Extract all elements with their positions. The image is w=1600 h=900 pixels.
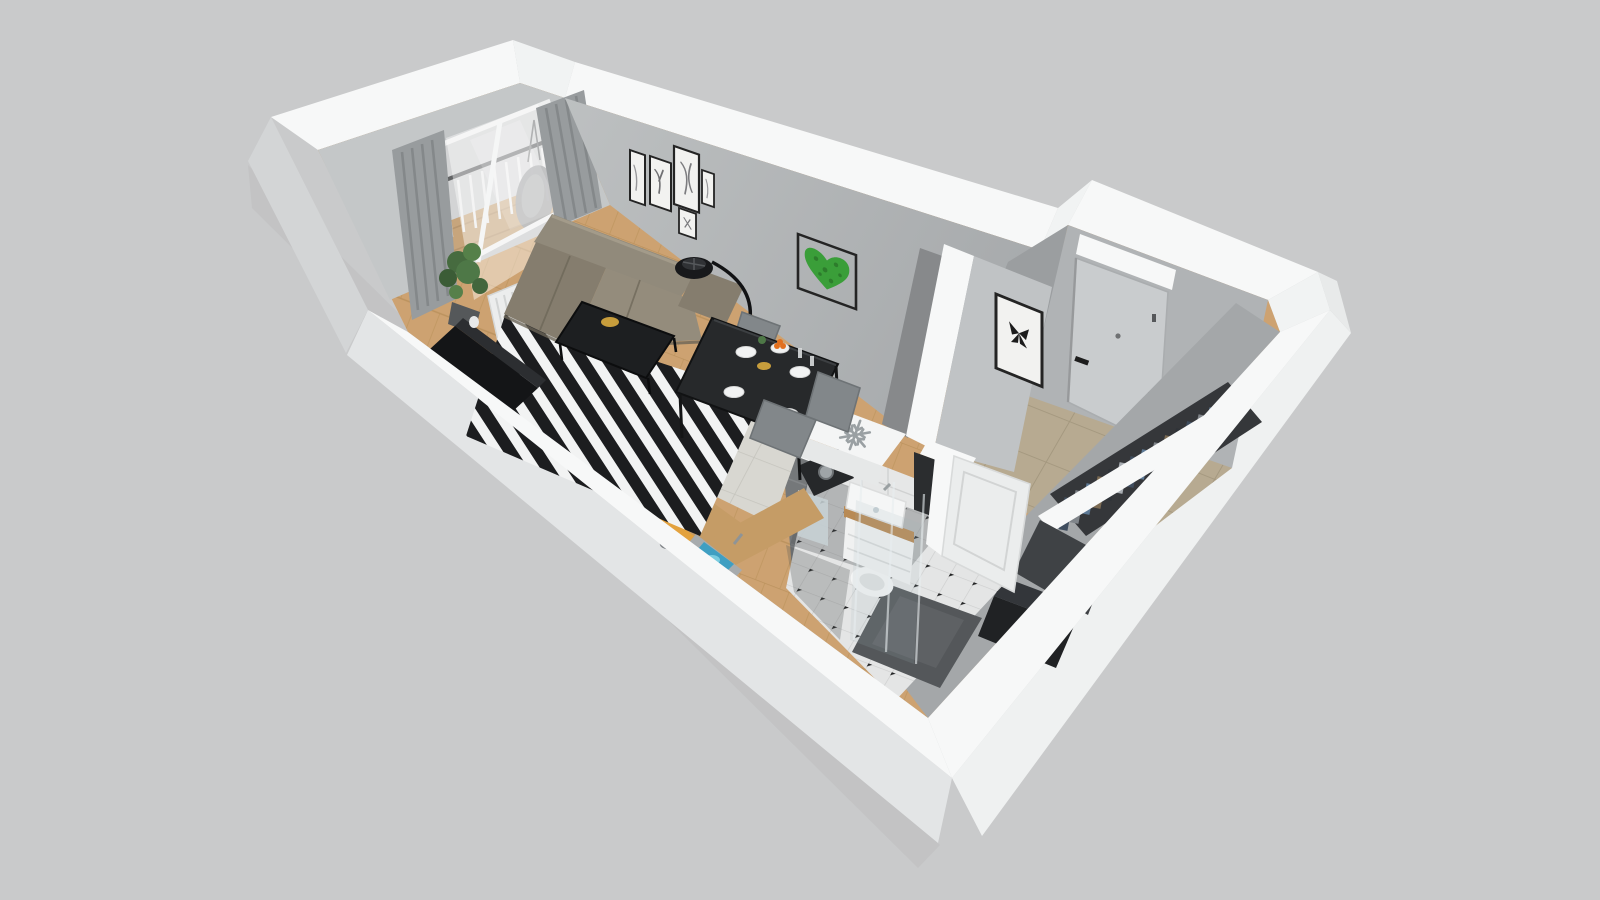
bottle — [798, 348, 802, 358]
door-hinge — [1152, 314, 1156, 322]
table-plant — [758, 336, 766, 344]
screenshot-stage — [0, 0, 1600, 900]
plate — [790, 367, 810, 378]
floorplan-3d-render — [0, 0, 1600, 900]
vase — [469, 316, 479, 328]
peephole-icon — [1115, 333, 1120, 338]
plate — [736, 347, 756, 358]
plate — [724, 387, 744, 398]
gold-bowl — [601, 317, 619, 327]
gold-plate — [757, 362, 771, 370]
bottle — [810, 356, 814, 366]
